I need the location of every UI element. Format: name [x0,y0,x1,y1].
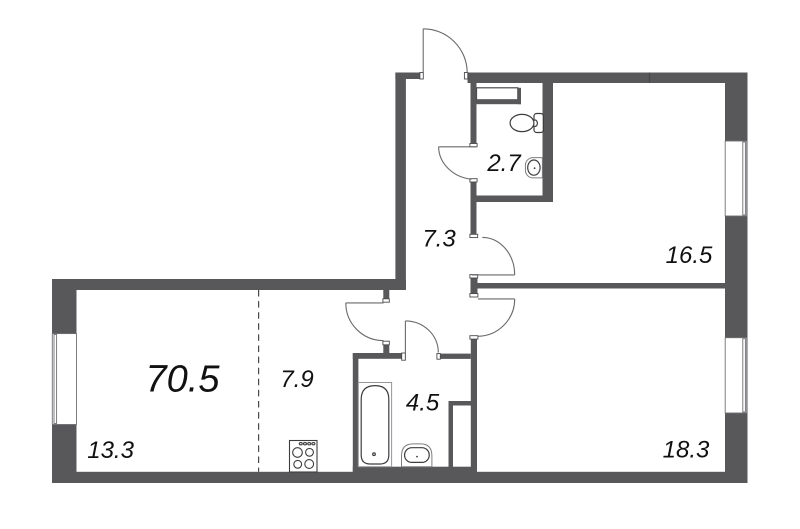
svg-text:4.5: 4.5 [406,390,440,417]
svg-text:13.3: 13.3 [87,437,134,464]
svg-text:70.5: 70.5 [146,358,221,400]
svg-text:7.3: 7.3 [422,226,456,253]
svg-text:18.3: 18.3 [663,437,710,464]
svg-text:2.7: 2.7 [486,150,522,177]
svg-text:16.5: 16.5 [666,242,713,269]
svg-text:7.9: 7.9 [280,366,313,393]
